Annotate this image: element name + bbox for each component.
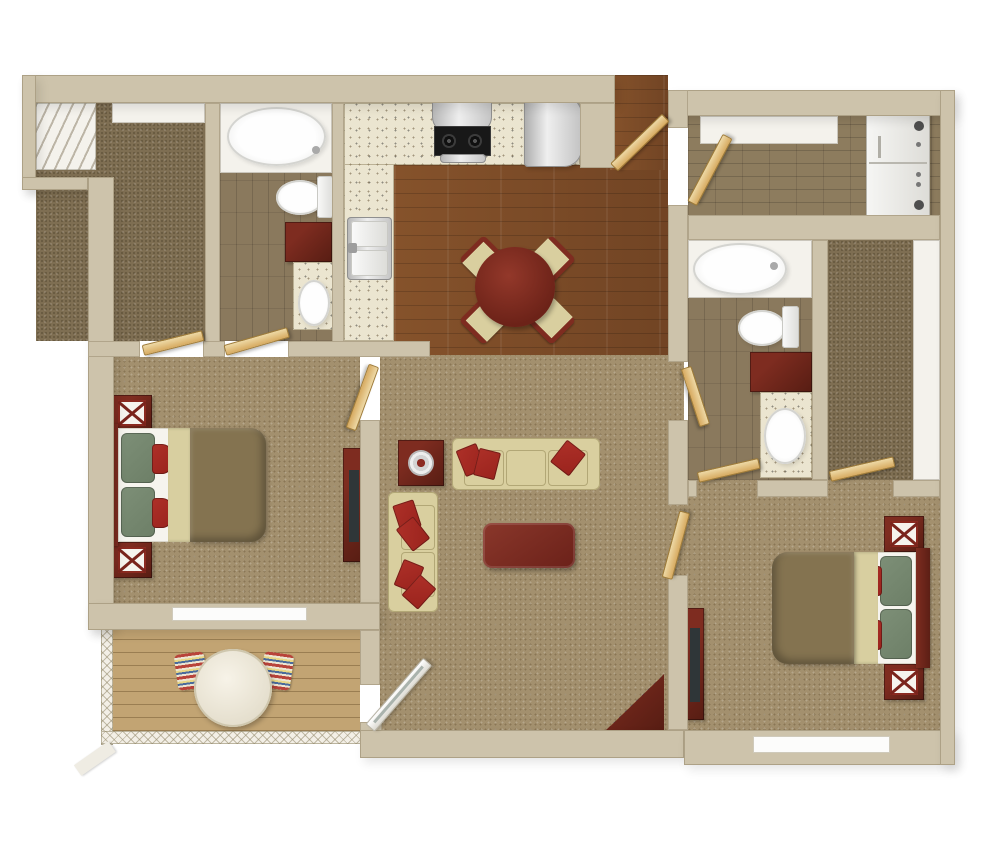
washer-handle bbox=[878, 136, 881, 158]
coffee-table bbox=[483, 523, 575, 568]
bedroom1-window bbox=[172, 607, 307, 621]
closet1-shelf-unit bbox=[36, 103, 96, 170]
bed1-pillow bbox=[121, 433, 155, 483]
wall-closet1-bath1 bbox=[205, 103, 220, 357]
vanity1-cabinet bbox=[285, 222, 332, 262]
nightstand bbox=[884, 516, 924, 552]
patio-table bbox=[194, 649, 272, 727]
wall-bath1-kitchen bbox=[332, 103, 344, 357]
toilet1-tank bbox=[317, 176, 333, 218]
closet2-shelf bbox=[913, 240, 940, 480]
sofa-cushion bbox=[506, 450, 546, 486]
cooktop bbox=[434, 126, 491, 156]
wall-bedroom1-top-a bbox=[88, 341, 140, 357]
faucet-icon bbox=[348, 243, 357, 253]
dryer-knob-icon bbox=[914, 121, 924, 131]
bed2-pillow bbox=[880, 609, 912, 659]
wall-bedroom1-living bbox=[360, 420, 380, 603]
wall-left-upper bbox=[22, 75, 36, 190]
vanity2-sink bbox=[764, 408, 806, 464]
kitchen-sink bbox=[347, 217, 392, 280]
nightstand-decor bbox=[890, 669, 918, 695]
washer-seam bbox=[869, 162, 927, 164]
tub2-faucet-icon bbox=[770, 262, 778, 270]
nightstand bbox=[112, 542, 152, 578]
bed2-comforter bbox=[772, 552, 854, 664]
wall-bedroom2-top-c bbox=[893, 480, 940, 497]
closet1-top-shelf bbox=[112, 103, 205, 123]
nightstand-decor bbox=[118, 400, 146, 426]
floor-plan bbox=[0, 0, 985, 844]
nightstand-decor bbox=[118, 547, 146, 573]
wall-laundry-bottom bbox=[688, 215, 940, 240]
wall-bedroom1-top-b bbox=[203, 341, 225, 357]
wall-left bbox=[88, 177, 114, 630]
bathtub1 bbox=[227, 107, 326, 166]
wall-bedroom1-top-c bbox=[288, 341, 430, 357]
wall-living-bottom bbox=[360, 730, 684, 758]
bedroom1-tv bbox=[349, 470, 359, 542]
nightstand bbox=[884, 664, 924, 700]
wall-living-bedroom2 bbox=[668, 575, 688, 730]
patio-railing-post bbox=[74, 741, 116, 776]
patio-railing-bottom bbox=[101, 731, 365, 744]
toilet2-tank bbox=[782, 306, 799, 348]
wall-right bbox=[940, 90, 955, 765]
nightstand-decor bbox=[890, 521, 918, 547]
wall-patio-right bbox=[360, 630, 380, 685]
toilet2-bowl bbox=[738, 310, 786, 346]
wall-corridor-a bbox=[668, 90, 688, 128]
patio-railing-left bbox=[101, 628, 113, 745]
wall-bedroom2-top-b bbox=[757, 480, 828, 497]
washer-dryer bbox=[866, 112, 930, 216]
wall-corridor-c bbox=[668, 420, 688, 505]
wall-kitchen-stub bbox=[580, 103, 615, 168]
wall-top bbox=[22, 75, 615, 103]
burner-icon bbox=[468, 134, 482, 148]
washer-knob-icon bbox=[914, 200, 924, 210]
bed2-headboard bbox=[916, 548, 930, 668]
vanity2-cabinet bbox=[750, 352, 812, 392]
refrigerator bbox=[524, 96, 582, 167]
washer-button-icon bbox=[916, 172, 921, 177]
bedroom2-tv bbox=[690, 628, 700, 702]
sink-basin bbox=[351, 250, 388, 276]
dining-table bbox=[475, 247, 555, 327]
burner-icon bbox=[442, 134, 456, 148]
bed2-blanket-fold bbox=[852, 552, 878, 664]
bed2-pillow bbox=[880, 556, 912, 606]
wall-left-step bbox=[22, 177, 88, 190]
end-table bbox=[398, 440, 444, 486]
washer-button-icon bbox=[916, 182, 921, 187]
nightstand bbox=[112, 395, 152, 431]
vanity1-sink bbox=[298, 280, 330, 326]
decor-plate-icon bbox=[408, 450, 434, 476]
wall-bedroom2-top-a bbox=[688, 480, 697, 497]
bed1-pillow bbox=[121, 487, 155, 537]
wall-top-right bbox=[668, 90, 955, 116]
bed1-comforter bbox=[190, 428, 266, 542]
washer-button-icon bbox=[916, 142, 921, 147]
wall-bath2-closet2 bbox=[812, 240, 828, 480]
wall-corridor-b bbox=[668, 205, 688, 362]
bedroom2-window bbox=[753, 736, 890, 753]
oven-handle bbox=[440, 154, 486, 163]
tub1-faucet-icon bbox=[312, 146, 320, 154]
